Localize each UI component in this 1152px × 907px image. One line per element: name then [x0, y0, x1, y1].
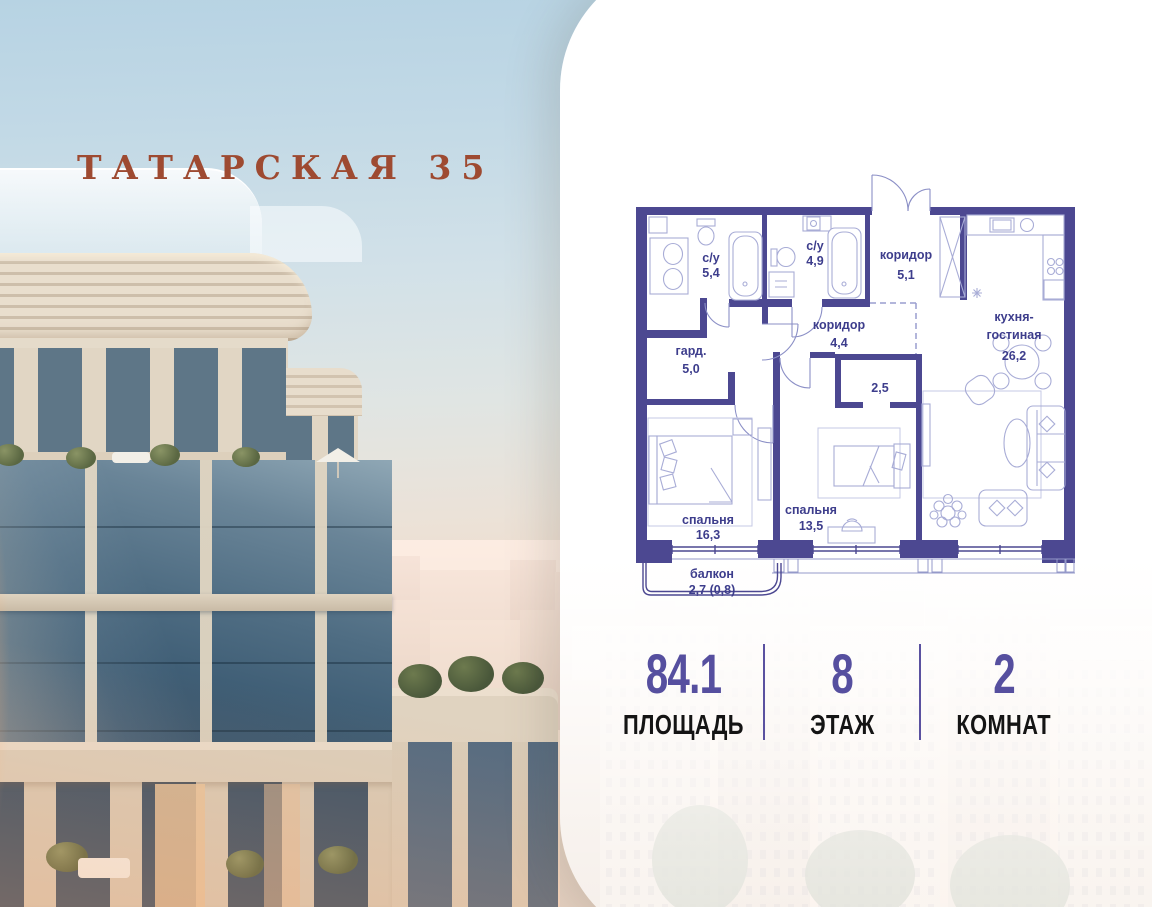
apartment-card: с/у 5,4 с/у 4,9 коридор 5,1 коридор 4,4 …: [560, 0, 1152, 907]
room-area-entry-hall: 5,1: [897, 268, 914, 282]
room-label-bedroom2: спальня: [785, 503, 837, 517]
room-label-kitchen-line1: кухня-: [994, 310, 1033, 324]
room-area-bedroom2: 13,5: [799, 519, 823, 533]
sunset-glow: [0, 430, 220, 907]
room-area-closet: 2,5: [871, 381, 888, 395]
room-label-hallway: коридор: [813, 318, 866, 332]
stats-row: 84.1 ПЛОЩАДЬ 8 ЭТАЖ 2 КОМНАТ: [603, 640, 1087, 740]
facade-cornice: [0, 253, 312, 341]
project-title: ТАТАРСКАЯ 35: [77, 148, 494, 187]
bedroom1-furniture: [648, 418, 771, 526]
room-area-bathroom2: 4,9: [806, 254, 823, 268]
umbrella: [337, 462, 339, 478]
room-label-entry-hall: коридор: [880, 248, 933, 262]
room-area-balcony: 2,7 (0,8): [689, 583, 736, 597]
umbrella: [316, 448, 360, 462]
stat-rooms: 2 КОМНАТ: [921, 640, 1087, 740]
stat-floor: 8 ЭТАЖ: [765, 640, 919, 740]
stat-area: 84.1 ПЛОЩАДЬ: [603, 640, 763, 740]
room-label-balcony: балкон: [690, 567, 734, 581]
stat-floor-value: 8: [831, 646, 853, 702]
living-furniture: [922, 335, 1065, 527]
room-label-kitchen-line2: гостиная: [986, 328, 1041, 342]
floor-plan: с/у 5,4 с/у 4,9 коридор 5,1 коридор 4,4 …: [623, 158, 1083, 610]
room-area-kitchen: 26,2: [1002, 349, 1026, 363]
stat-area-label: ПЛОЩАДЬ: [623, 711, 744, 739]
stat-floor-label: ЭТАЖ: [810, 711, 875, 739]
stat-rooms-label: КОМНАТ: [957, 711, 1052, 739]
room-area-bathroom1: 5,4: [702, 266, 719, 280]
facade-wing: [286, 368, 362, 416]
room-label-bedroom1: спальня: [682, 513, 734, 527]
stat-area-value: 84.1: [645, 646, 721, 702]
room-area-wardrobe: 5,0: [682, 362, 699, 376]
kitchen-fixtures: [940, 215, 1064, 300]
room-label-wardrobe: гард.: [676, 344, 707, 358]
room-label-bathroom1: с/у: [702, 251, 719, 265]
apartment-flyer: ТАТАРСКАЯ 35: [0, 0, 1152, 907]
room-area-bedroom1: 16,3: [696, 528, 720, 542]
facade-band: [0, 338, 288, 348]
room-label-bathroom2: с/у: [806, 239, 823, 253]
terrace-plant: [232, 447, 260, 467]
bedroom2-furniture: [818, 428, 910, 543]
room-area-hallway: 4,4: [830, 336, 847, 350]
zone-boundary: [870, 303, 916, 354]
roof-glass-parapet: [250, 206, 362, 262]
stat-rooms-value: 2: [993, 646, 1015, 702]
